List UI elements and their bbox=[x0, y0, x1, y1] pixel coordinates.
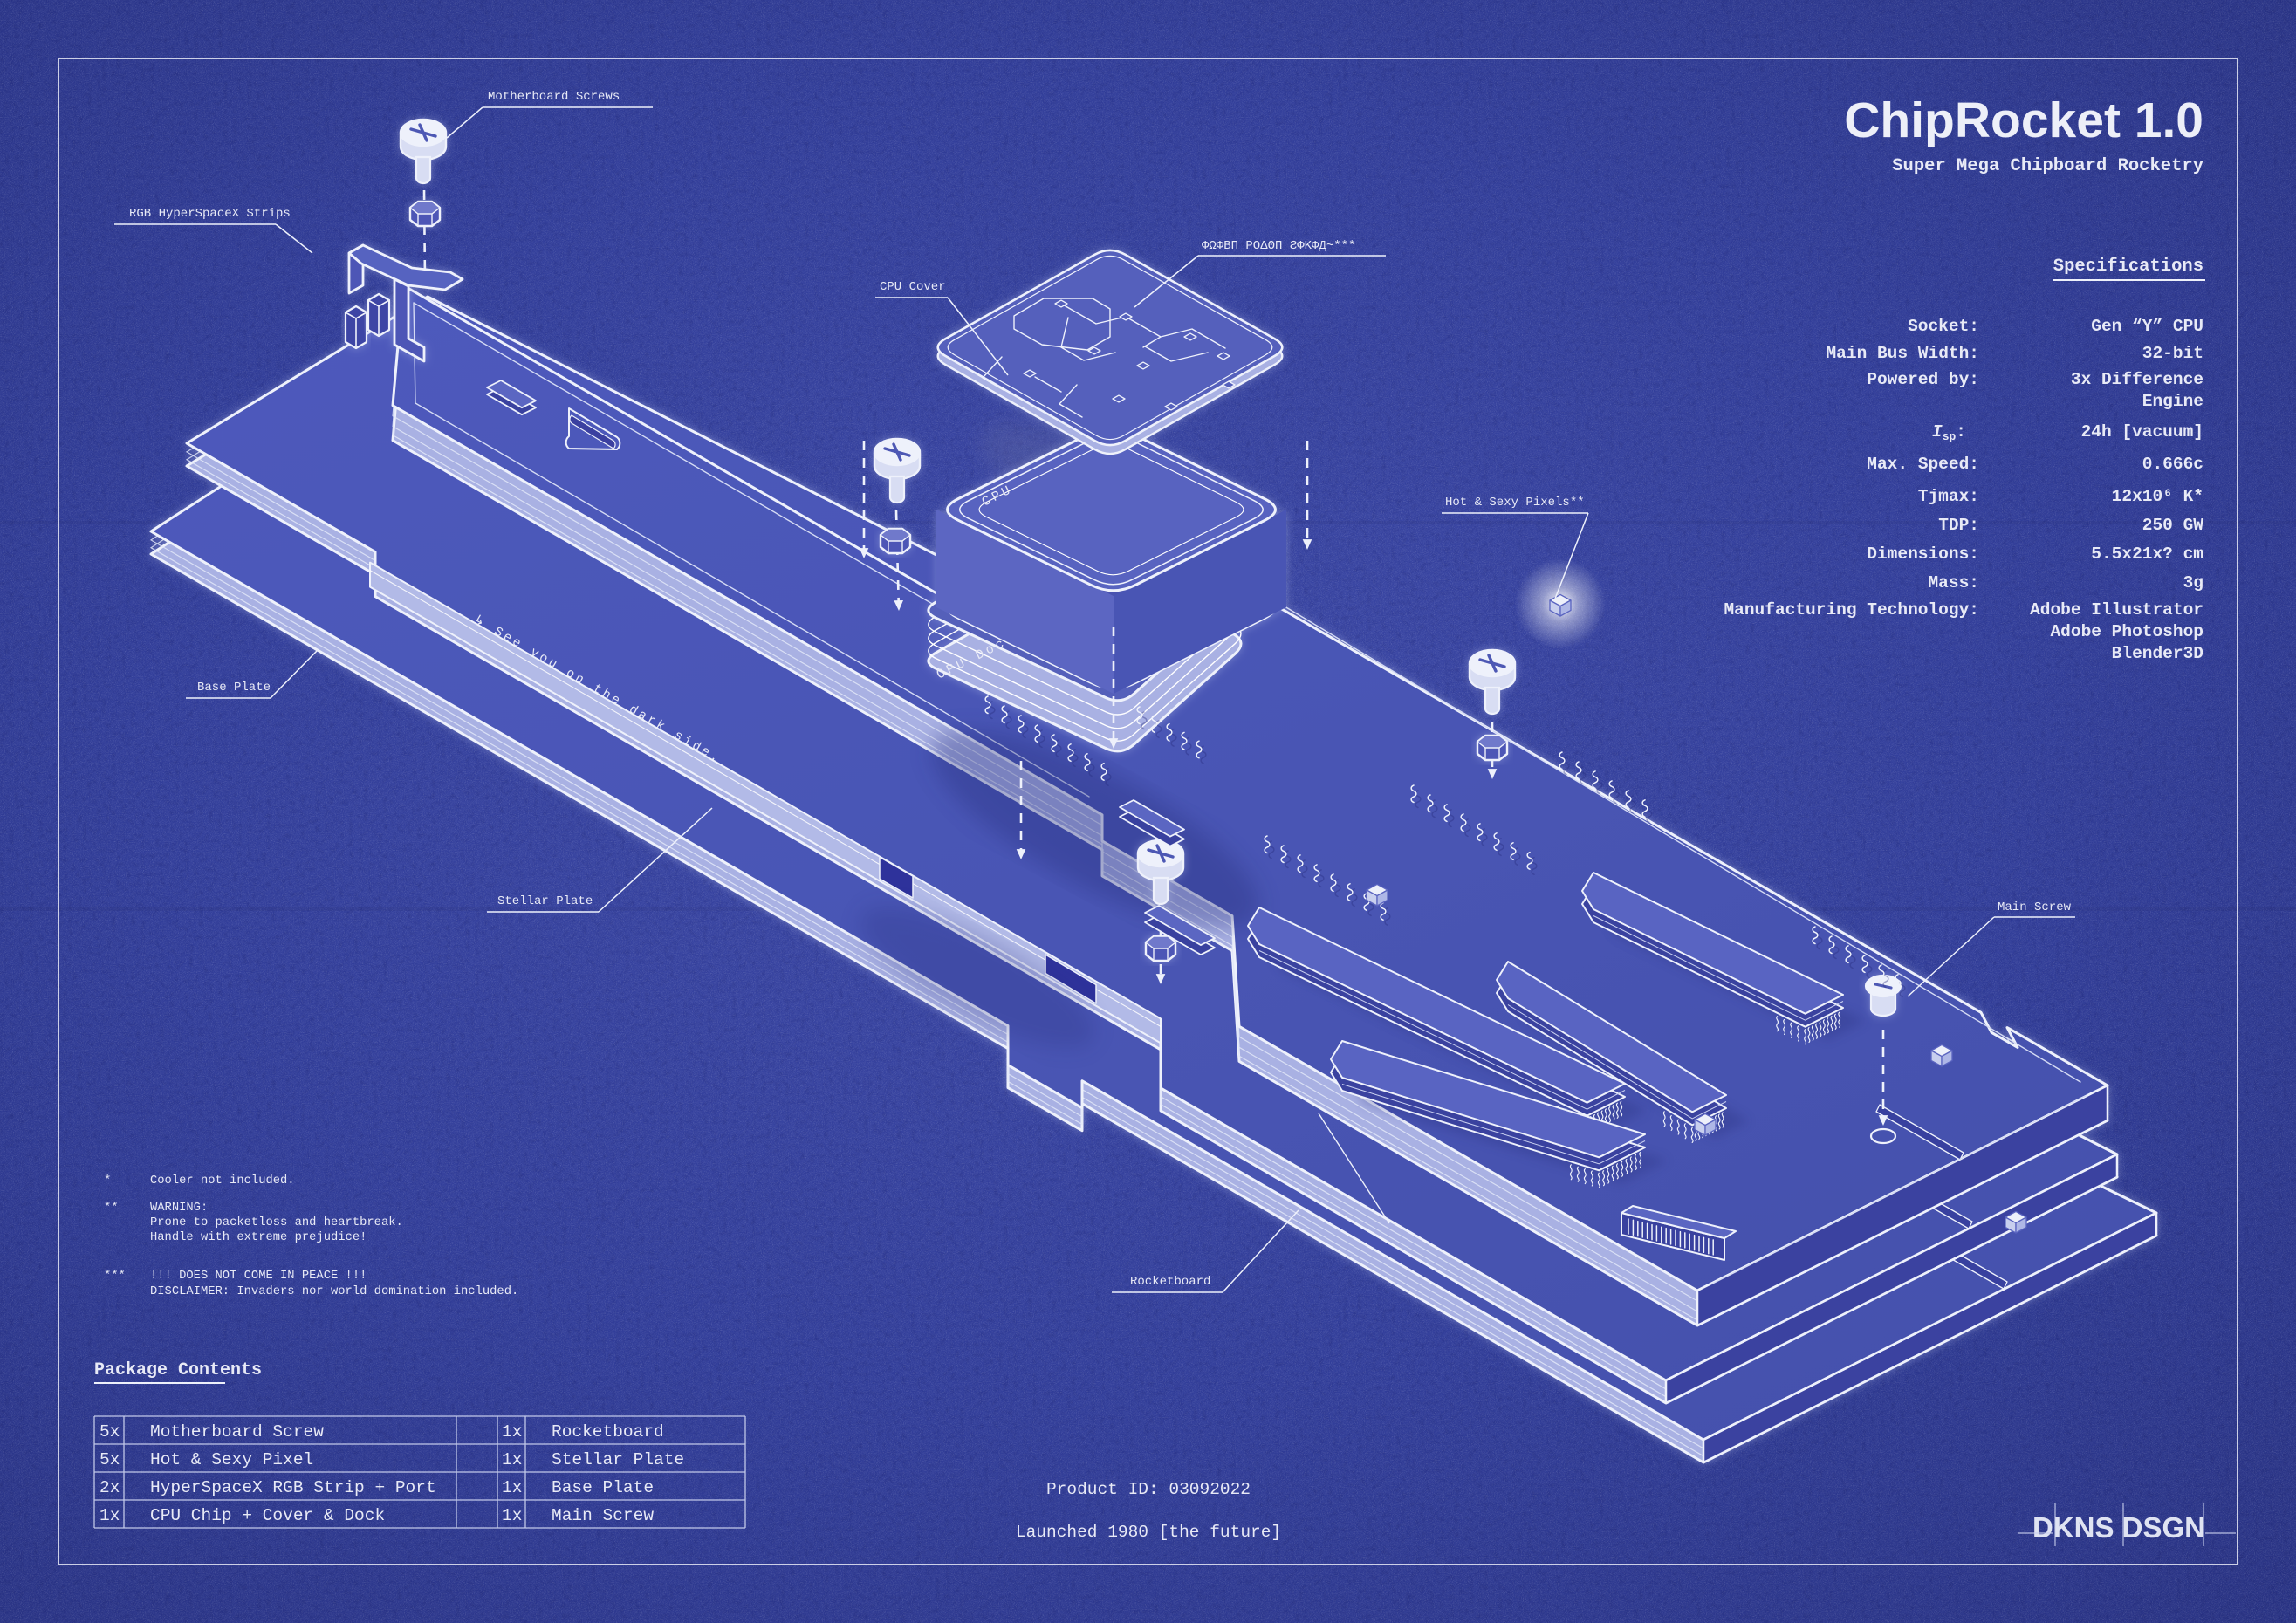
svg-text:Prone to packetloss and heartb: Prone to packetloss and heartbreak. bbox=[150, 1216, 403, 1229]
svg-text:Rocketboard: Rocketboard bbox=[1130, 1275, 1210, 1289]
svg-text:Specifications: Specifications bbox=[2053, 257, 2203, 277]
svg-text:1x: 1x bbox=[99, 1506, 120, 1525]
svg-text:!!! DOES NOT COME IN PEACE !!!: !!! DOES NOT COME IN PEACE !!! bbox=[150, 1270, 367, 1283]
svg-text:RGB HyperSpaceX Strips: RGB HyperSpaceX Strips bbox=[129, 207, 291, 221]
svg-text:**: ** bbox=[104, 1201, 119, 1215]
svg-text:32-bit: 32-bit bbox=[2142, 344, 2203, 363]
svg-text:1x: 1x bbox=[502, 1478, 522, 1497]
svg-text:Motherboard Screws: Motherboard Screws bbox=[488, 90, 620, 104]
svg-text:24h [vacuum]: 24h [vacuum] bbox=[2081, 422, 2203, 442]
svg-text:CPU Chip + Cover & Dock: CPU Chip + Cover & Dock bbox=[150, 1506, 385, 1525]
svg-text:Adobe Photoshop: Adobe Photoshop bbox=[2050, 622, 2203, 641]
svg-text:3g: 3g bbox=[2183, 573, 2203, 592]
svg-text:2x: 2x bbox=[99, 1478, 120, 1497]
svg-text:Manufacturing Technology:: Manufacturing Technology: bbox=[1724, 600, 1979, 620]
svg-text:ChipRocket 1.0: ChipRocket 1.0 bbox=[1844, 92, 2203, 148]
svg-text:Launched 1980 [the future]: Launched 1980 [the future] bbox=[1016, 1523, 1281, 1542]
svg-text:Product ID: 03092022: Product ID: 03092022 bbox=[1046, 1480, 1251, 1499]
svg-text:5.5x21x? cm: 5.5x21x? cm bbox=[2091, 544, 2203, 564]
svg-text:CPU Cover: CPU Cover bbox=[880, 280, 946, 294]
svg-text:3x Difference: 3x Difference bbox=[2071, 370, 2203, 389]
svg-text:Hot & Sexy Pixel: Hot & Sexy Pixel bbox=[150, 1450, 313, 1469]
svg-text:0.666c: 0.666c bbox=[2142, 455, 2203, 474]
svg-text:Adobe Illustrator: Adobe Illustrator bbox=[2030, 600, 2203, 620]
svg-text:TDP:: TDP: bbox=[1938, 516, 1979, 535]
svg-text:Blender3D: Blender3D bbox=[2112, 644, 2203, 663]
svg-text:Package Contents: Package Contents bbox=[94, 1360, 262, 1380]
svg-text:Socket:: Socket: bbox=[1908, 317, 1979, 336]
svg-text:Rocketboard: Rocketboard bbox=[552, 1422, 664, 1442]
svg-text:Main Bus Width:: Main Bus Width: bbox=[1826, 344, 1979, 363]
svg-text:1x: 1x bbox=[502, 1450, 522, 1469]
svg-text:Max. Speed:: Max. Speed: bbox=[1867, 455, 1979, 474]
svg-text:Motherboard Screw: Motherboard Screw bbox=[150, 1422, 324, 1442]
svg-text:Tjmax:: Tjmax: bbox=[1918, 487, 1979, 506]
svg-text:Dimensions:: Dimensions: bbox=[1867, 544, 1979, 564]
svg-text:Hot & Sexy Pixels**: Hot & Sexy Pixels** bbox=[1445, 496, 1585, 510]
svg-text:250 GW: 250 GW bbox=[2142, 516, 2204, 535]
svg-text:5x: 5x bbox=[99, 1450, 120, 1469]
svg-text:Stellar Plate: Stellar Plate bbox=[497, 894, 593, 908]
svg-text:Engine: Engine bbox=[2142, 392, 2203, 411]
svg-text:Powered by:: Powered by: bbox=[1867, 370, 1979, 389]
svg-text:*: * bbox=[104, 1174, 111, 1188]
svg-text:ΦΩΦΒП РΟΔΘП ƧФΚΦД~***: ΦΩΦΒП РΟΔΘП ƧФΚΦД~*** bbox=[1202, 239, 1355, 253]
svg-text:Super Mega Chipboard Rocketry: Super Mega Chipboard Rocketry bbox=[1892, 156, 2203, 176]
svg-text:HyperSpaceX RGB Strip + Port: HyperSpaceX RGB Strip + Port bbox=[150, 1478, 436, 1497]
svg-text:Gen “Y” CPU: Gen “Y” CPU bbox=[2091, 317, 2203, 336]
svg-text:12x10⁶ K*: 12x10⁶ K* bbox=[2112, 487, 2203, 506]
svg-text:Stellar Plate: Stellar Plate bbox=[552, 1450, 684, 1469]
svg-text:***: *** bbox=[104, 1269, 126, 1283]
svg-text:Base Plate: Base Plate bbox=[552, 1478, 654, 1497]
svg-text:Mass:: Mass: bbox=[1928, 573, 1979, 592]
svg-text:Main Screw: Main Screw bbox=[1998, 901, 2072, 914]
svg-text:DISCLAIMER: Invaders nor world: DISCLAIMER: Invaders nor world dominatio… bbox=[150, 1284, 518, 1298]
svg-text:Base Plate: Base Plate bbox=[197, 681, 271, 695]
svg-text:DKNS DSGN: DKNS DSGN bbox=[2032, 1511, 2205, 1544]
svg-text:Main Screw: Main Screw bbox=[552, 1506, 654, 1525]
svg-text:WARNING:: WARNING: bbox=[150, 1202, 208, 1215]
svg-text:5x: 5x bbox=[99, 1422, 120, 1442]
svg-text:Cooler not included.: Cooler not included. bbox=[150, 1174, 295, 1188]
svg-text:Handle with extreme prejudice!: Handle with extreme prejudice! bbox=[150, 1230, 367, 1244]
svg-text:1x: 1x bbox=[502, 1506, 522, 1525]
svg-text:1x: 1x bbox=[502, 1422, 522, 1442]
